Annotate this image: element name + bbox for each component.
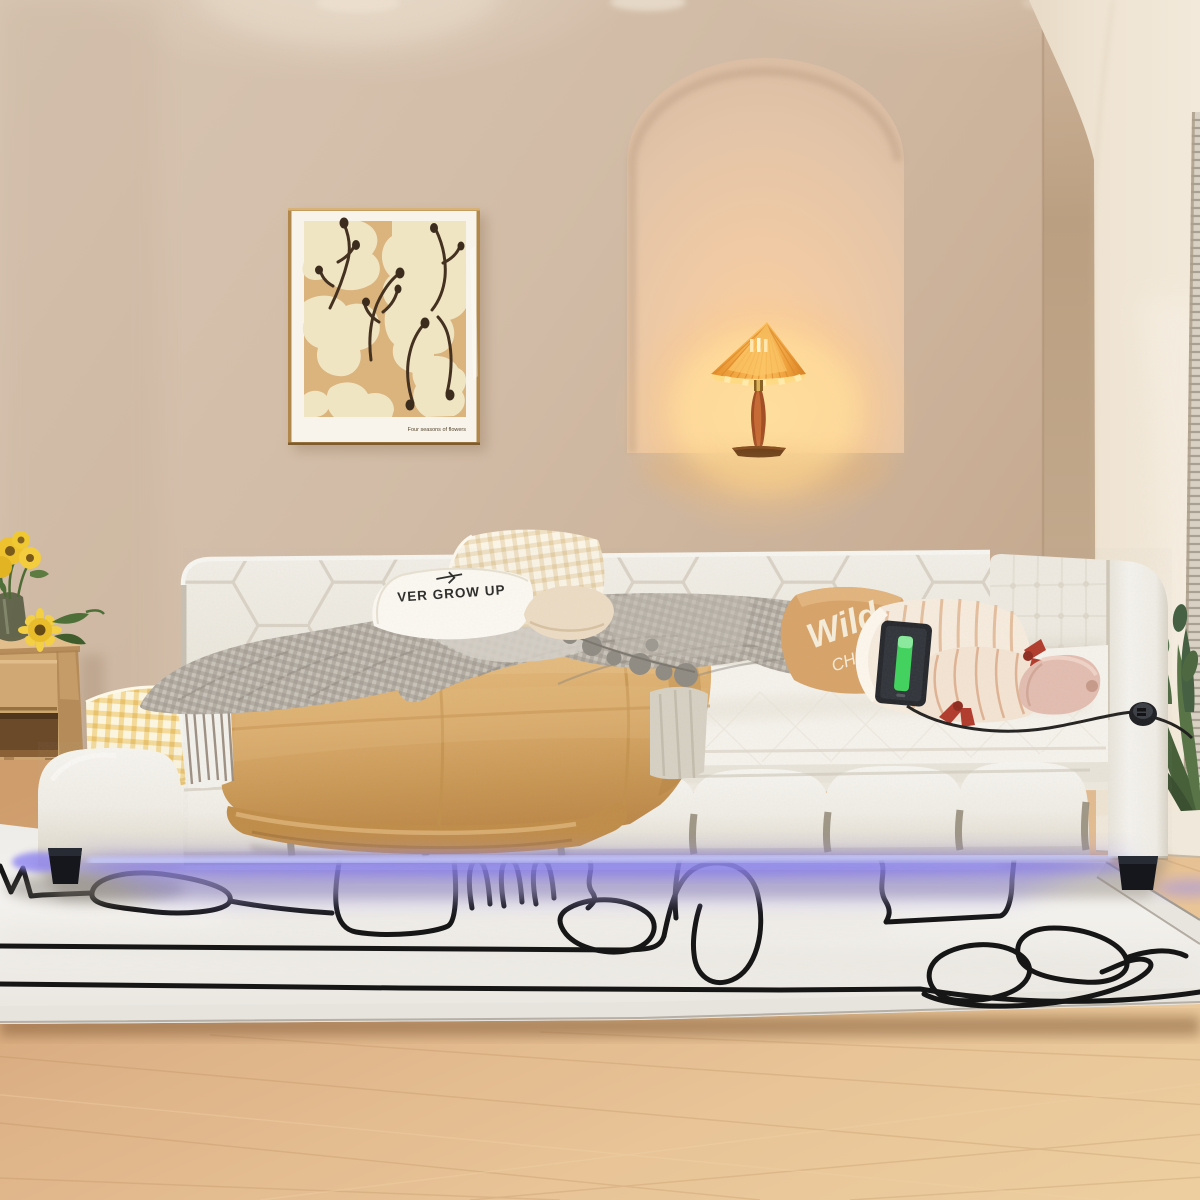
svg-text:Four seasons of flowers: Four seasons of flowers <box>408 427 467 433</box>
